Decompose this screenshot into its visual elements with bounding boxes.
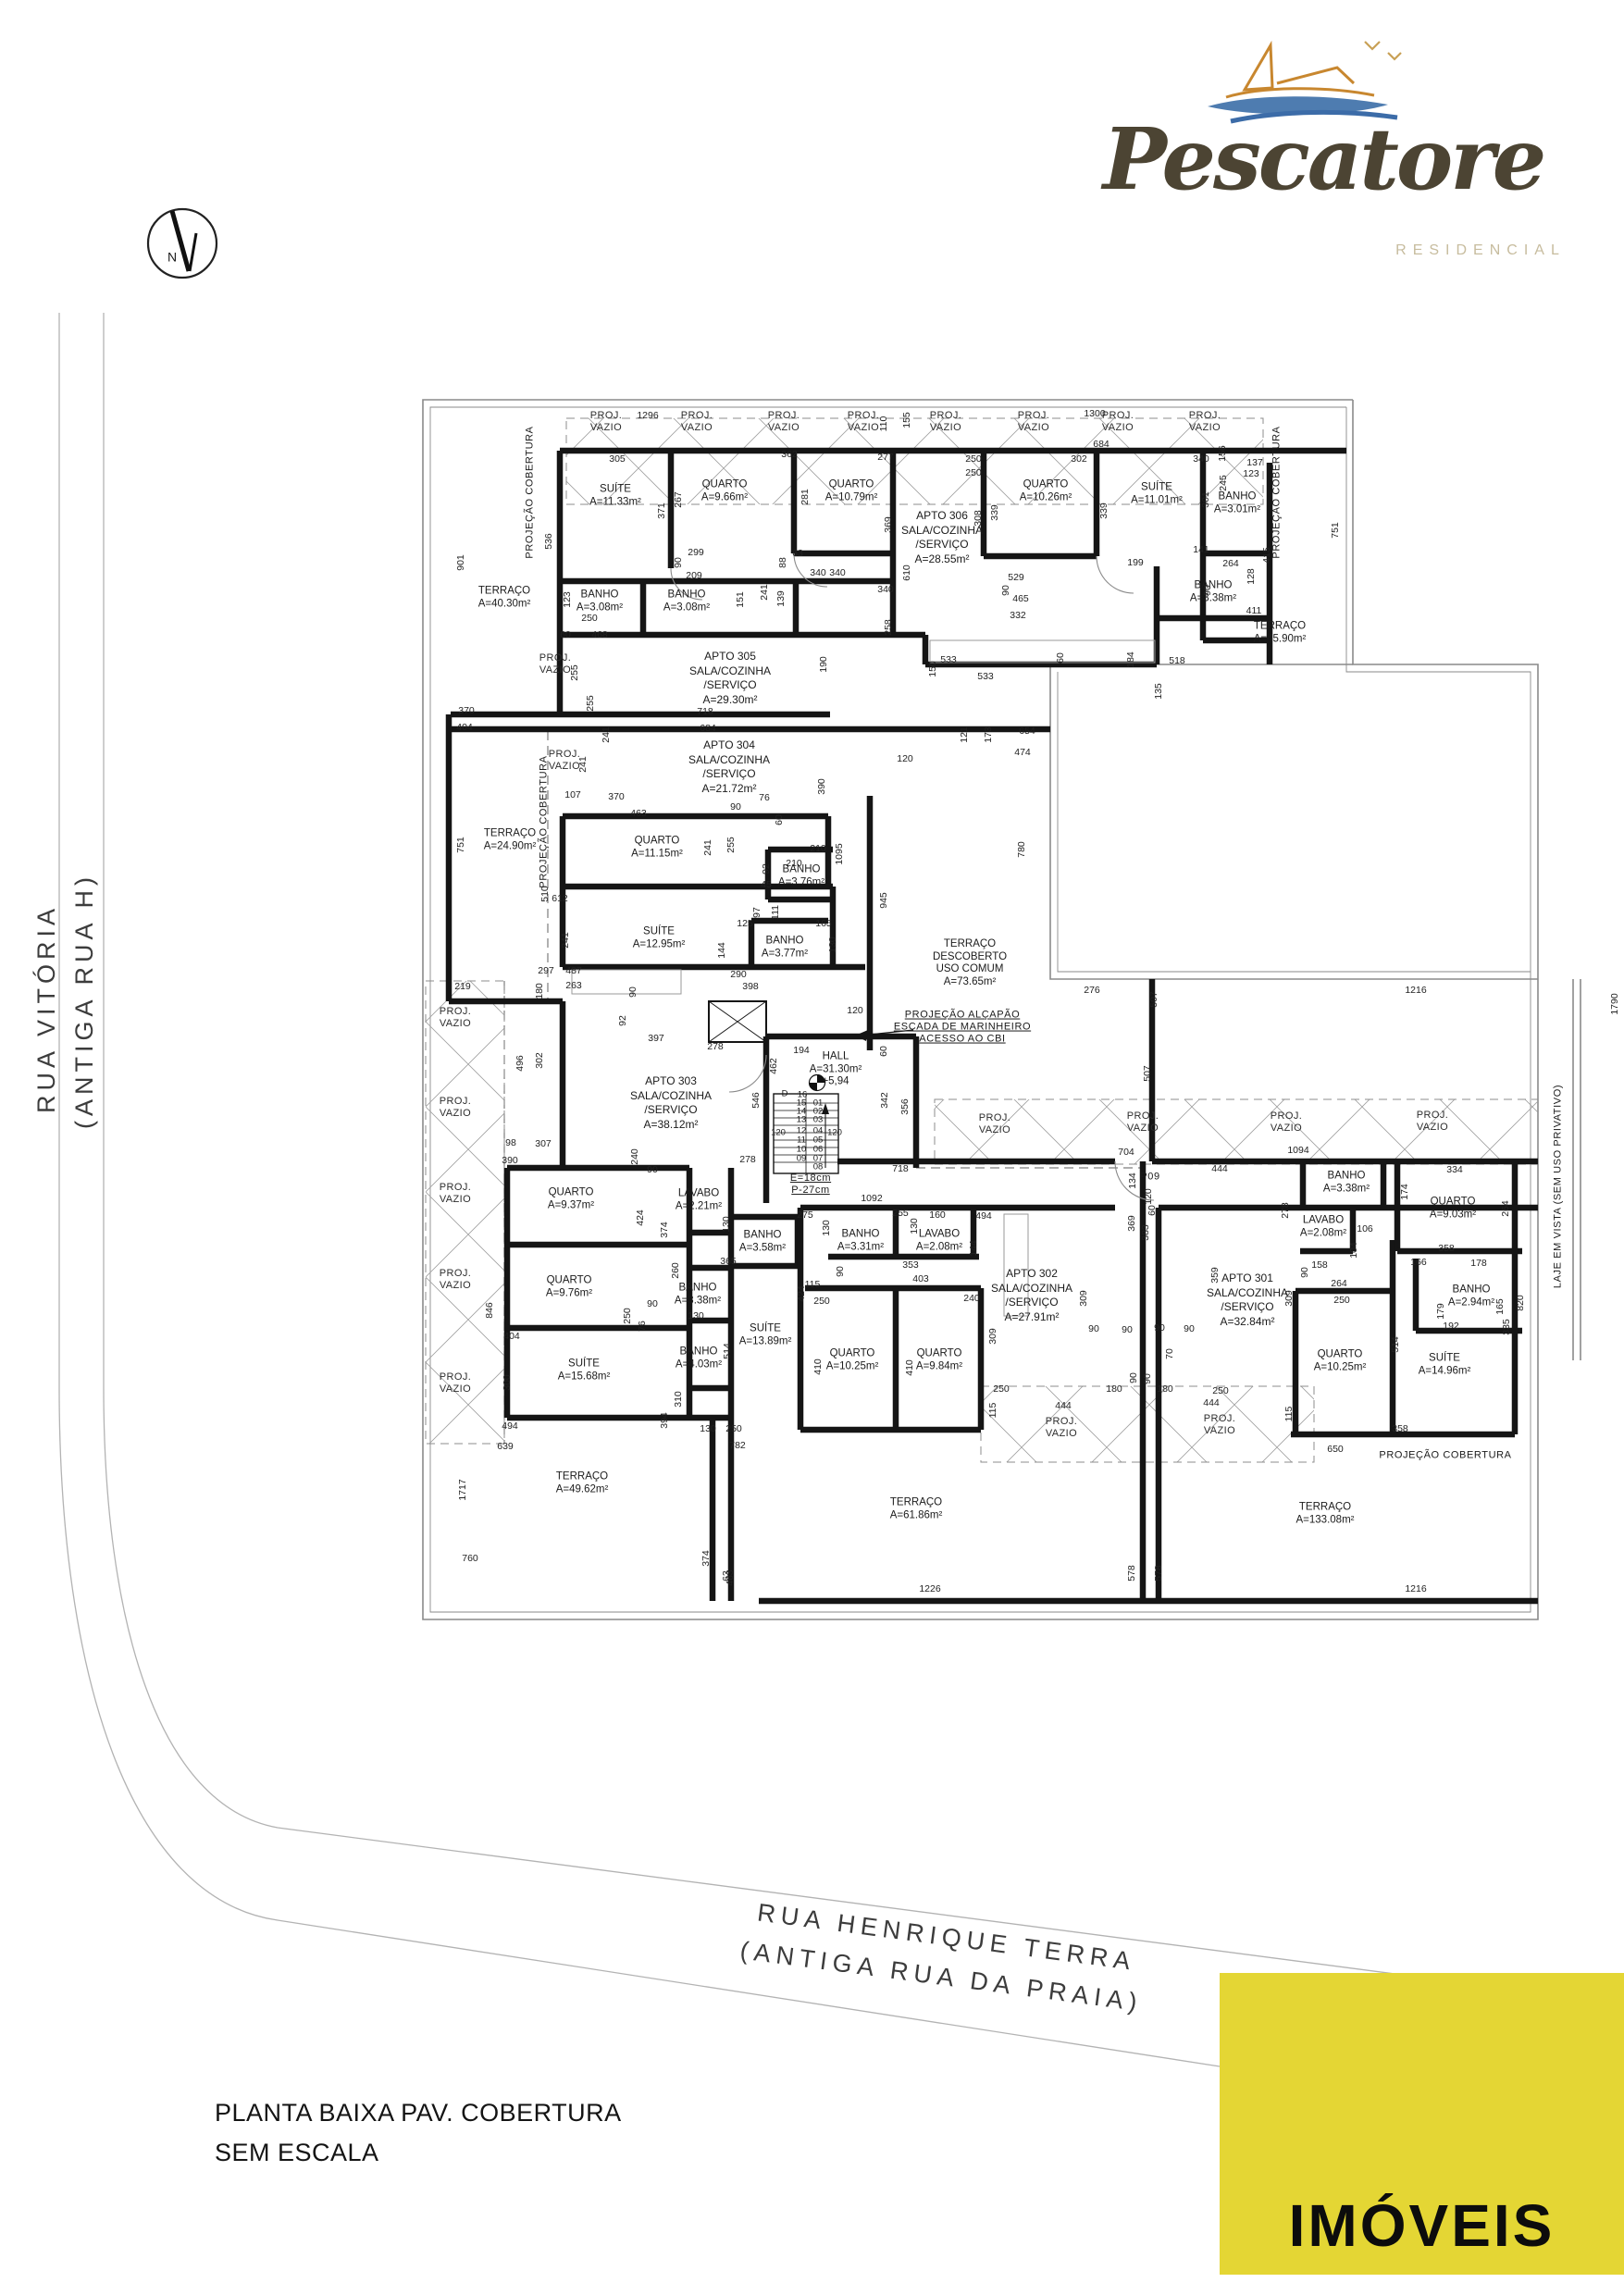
- mm-imoveis-logo: IMÓVEIS: [1220, 1973, 1624, 2275]
- drawing-scale: SEM ESCALA: [215, 2133, 622, 2173]
- mm-imoveis-text: IMÓVEIS: [1220, 2191, 1624, 2260]
- brand-logo: Pescatore RESIDENCIAL: [1036, 37, 1610, 259]
- north-arrow-icon: [148, 209, 217, 278]
- brand-name: Pescatore: [1036, 109, 1610, 209]
- staircase: [774, 1094, 838, 1173]
- street-old-name: (ANTIGA RUA H): [66, 888, 104, 1129]
- counters: [572, 640, 1155, 1316]
- floor-plan-page: Pescatore RESIDENCIAL N RUA VITÓRIA (ANT…: [0, 0, 1624, 2295]
- drawing-title: PLANTA BAIXA PAV. COBERTURA: [215, 2093, 622, 2133]
- street-lines: [59, 313, 1621, 2066]
- title-block: PLANTA BAIXA PAV. COBERTURA SEM ESCALA: [215, 2093, 622, 2173]
- brand-subtitle: RESIDENCIAL: [1342, 242, 1619, 259]
- street-label-rua-vitoria: RUA VITÓRIA (ANTIGA RUA H): [28, 888, 324, 1129]
- street-name: RUA VITÓRIA: [28, 888, 66, 1129]
- level-symbol: [810, 1075, 825, 1091]
- elevator-shaft: [709, 1001, 766, 1042]
